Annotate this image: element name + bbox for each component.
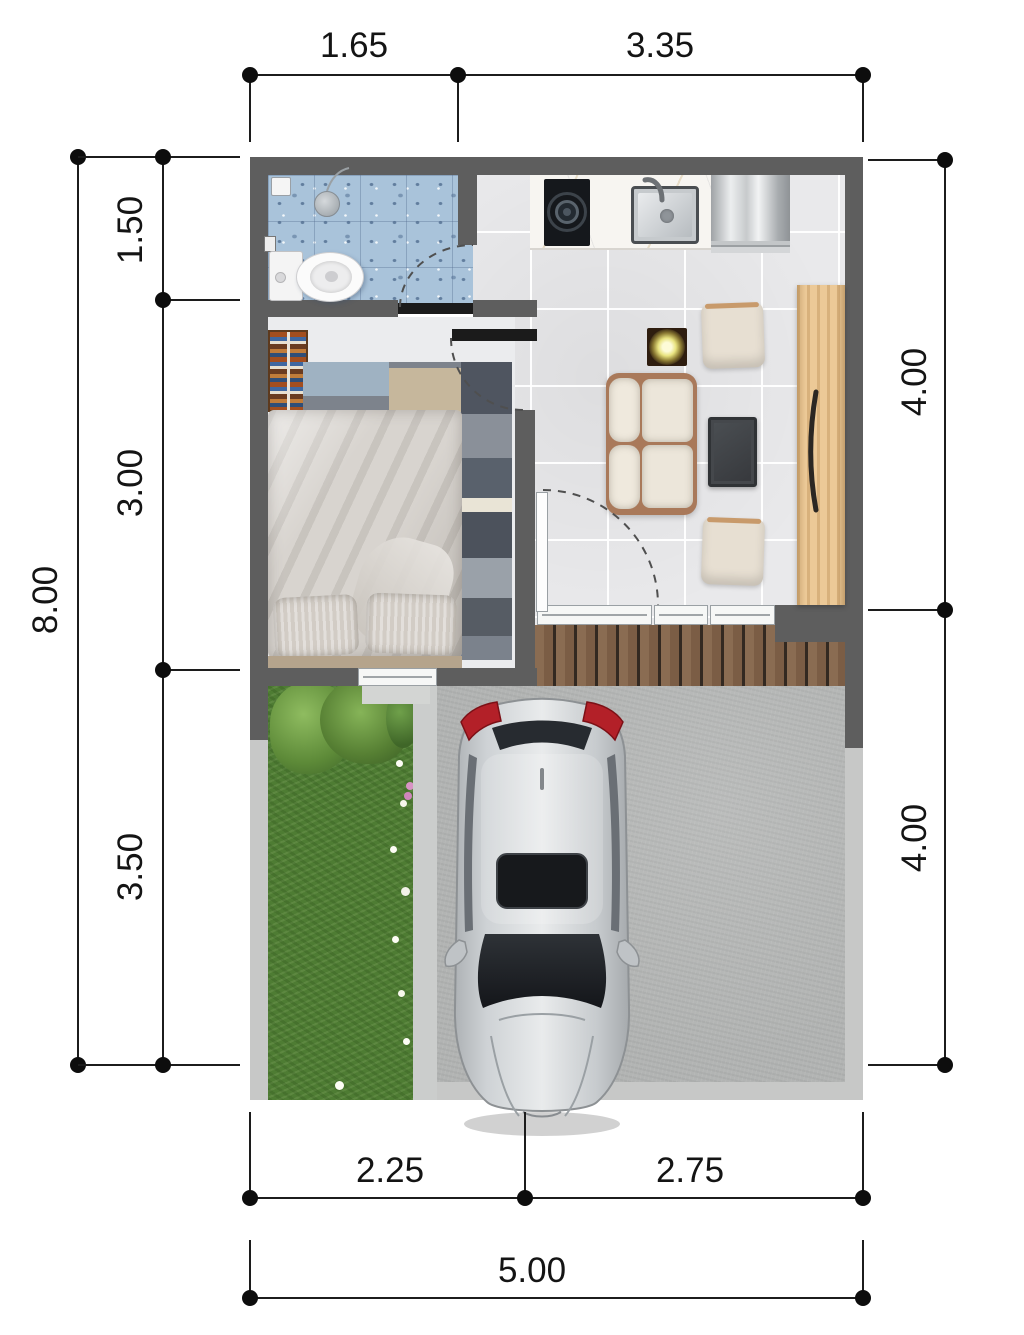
dim-line-bottom-outer — [250, 1297, 863, 1299]
floor-plan: 1.65 3.35 8.00 1.50 3.00 3.50 4.00 4.00 … — [0, 0, 1024, 1335]
dim-label-top-2: 3.35 — [626, 26, 694, 66]
dim-dot — [155, 1057, 171, 1073]
dim-tick — [862, 76, 864, 142]
dim-label-top-1: 1.65 — [320, 26, 388, 66]
dim-label-bottom-total: 5.00 — [498, 1251, 566, 1291]
dim-label-left-3: 3.50 — [111, 833, 151, 901]
dim-line-top — [250, 74, 863, 76]
dim-dot — [242, 67, 258, 83]
dim-dot — [855, 1290, 871, 1306]
dim-tick — [249, 76, 251, 142]
faucet-icon — [645, 180, 662, 200]
antenna — [540, 768, 544, 790]
dim-dot — [155, 662, 171, 678]
dim-label-left-2: 3.00 — [111, 449, 151, 517]
bathroom-door-swing-arc — [400, 245, 473, 307]
dim-tick — [163, 669, 240, 671]
car-icon — [437, 688, 647, 1138]
dim-dot — [937, 1057, 953, 1073]
dim-tick — [457, 76, 459, 142]
dim-dot — [937, 152, 953, 168]
dim-line-bottom-inner — [250, 1197, 863, 1199]
wardrobe-handle-icon — [811, 392, 816, 510]
dim-label-right-1: 4.00 — [895, 348, 935, 416]
dim-dot — [450, 67, 466, 83]
dim-dot — [517, 1190, 533, 1206]
dim-line-left-outer — [77, 157, 79, 1065]
dim-label-left-outer: 8.00 — [26, 566, 66, 634]
dim-label-left-1: 1.50 — [111, 196, 151, 264]
shower-hose-icon — [327, 168, 349, 191]
dim-dot — [855, 67, 871, 83]
dim-tick — [163, 299, 240, 301]
dim-dot — [855, 1190, 871, 1206]
bedroom-door-swing-arc — [451, 338, 523, 410]
dim-dot — [155, 292, 171, 308]
dim-dot — [937, 602, 953, 618]
dim-dot — [242, 1190, 258, 1206]
dim-label-right-2: 4.00 — [895, 804, 935, 872]
dim-dot — [155, 149, 171, 165]
sunroof — [497, 854, 587, 908]
entry-door-swing-arc — [543, 490, 658, 605]
dim-dot — [242, 1290, 258, 1306]
dim-label-bottom-2: 2.75 — [656, 1151, 724, 1191]
dim-label-bottom-1: 2.25 — [356, 1151, 424, 1191]
